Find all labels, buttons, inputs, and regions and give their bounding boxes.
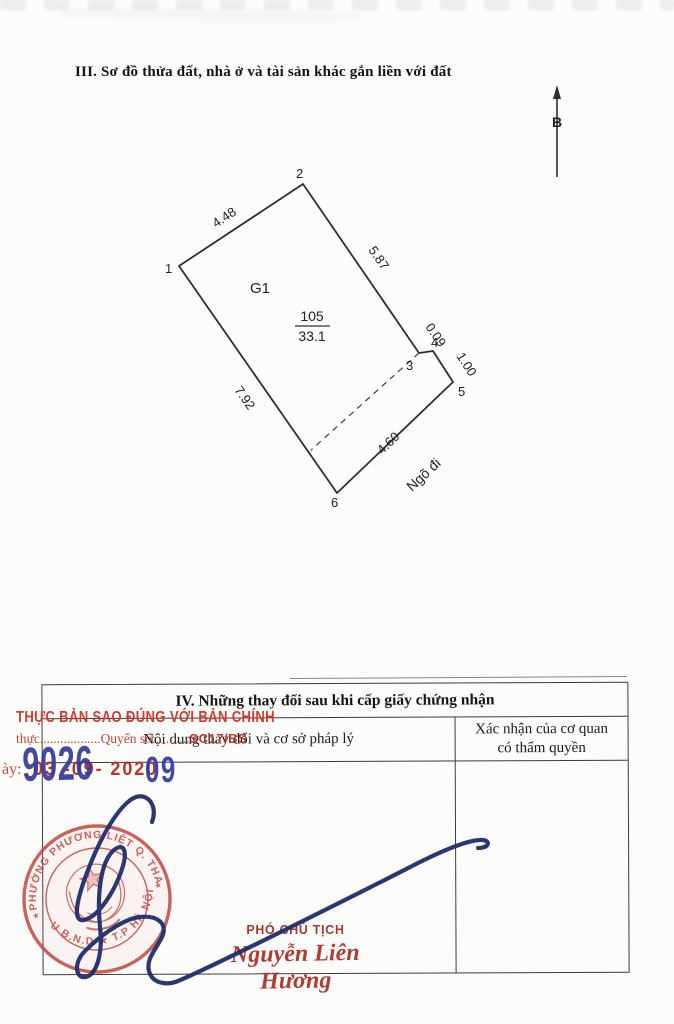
scanned-certificate-page: III. Sơ đồ thửa đất, nhà ở và tài sản kh… <box>0 0 674 1024</box>
parcel-area: 33.1 <box>298 328 325 344</box>
edge-4-60: 4.60 <box>374 429 403 457</box>
registry-number-large: 9026 <box>22 736 94 793</box>
north-arrow-icon: B <box>552 85 562 177</box>
registry-number-small: 09 <box>145 749 177 791</box>
parcel-dashed-line <box>311 353 419 450</box>
scan-artifact-smudge <box>60 8 360 22</box>
parcel-number: 105 <box>300 308 324 324</box>
certified-copy-stamp-line1: THỰC BẢN SAO ĐÚNG VỚI BẢN CHÍNH <box>16 709 229 727</box>
edge-5-87: 5.87 <box>366 243 393 272</box>
edge-1-00: 1.00 <box>453 349 479 378</box>
col-header-confirmation: Xác nhận của cơ quan có thẩm quyền <box>455 717 628 761</box>
col-header-confirmation-line1: Xác nhận của cơ quan <box>475 719 608 739</box>
table-top-border-artifact <box>290 676 627 679</box>
section3-heading: III. Sơ đồ thửa đất, nhà ở và tài sản kh… <box>75 64 505 81</box>
edge-7-92: 7.92 <box>232 383 259 412</box>
edge-0-09: 0.09 <box>423 320 450 349</box>
vertex-4: 4 <box>431 335 438 350</box>
edge-4-48: 4.48 <box>209 204 238 230</box>
signer-name: Nguyễn Liên Hương <box>198 939 394 996</box>
vertex-2: 2 <box>296 166 303 181</box>
vertex-6: 6 <box>331 495 338 510</box>
certify-book-label: Quyển số: <box>101 731 156 746</box>
vertex-3: 3 <box>406 358 413 373</box>
zone-label: G1 <box>250 280 270 297</box>
certify-book-value: SC17/BS <box>189 731 247 746</box>
col-header-confirmation-line2: có thẩm quyền <box>497 738 585 757</box>
seal-separator-left: ★ <box>31 911 40 921</box>
vertex-5: 5 <box>458 384 465 399</box>
certify-dots2: .......... <box>156 731 190 746</box>
alley-label: Ngõ đi <box>403 455 444 494</box>
parcel-diagram: 1 2 3 4 5 6 4.48 5.87 0.09 1.00 4.60 7.9… <box>165 166 480 510</box>
date-label-fragment: ày: <box>2 761 22 779</box>
north-label: B <box>552 114 562 130</box>
parcel-boundary <box>179 184 453 493</box>
signer-title: PHÓ CHỦ TỊCH <box>241 922 350 937</box>
body-cell-confirmation <box>455 761 629 973</box>
vertex-1: 1 <box>165 261 172 276</box>
